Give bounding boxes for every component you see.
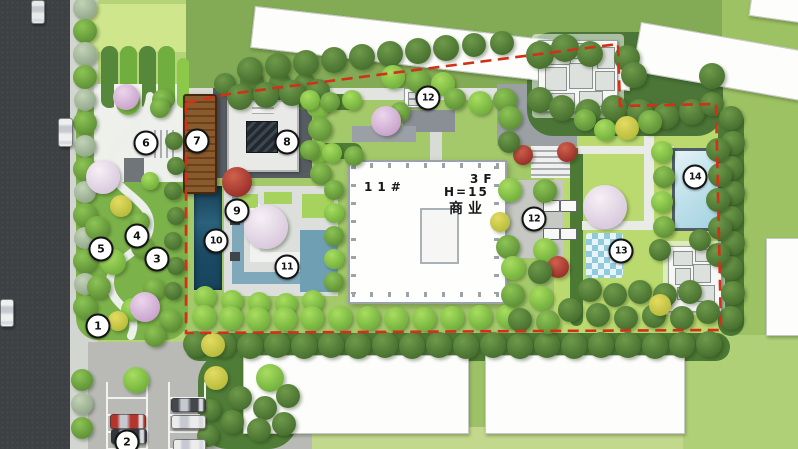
marker-12: 12 — [522, 207, 547, 232]
marker-4: 4 — [125, 224, 150, 249]
marker-2: 2 — [115, 430, 140, 449]
marker-5: 5 — [89, 237, 114, 262]
marker-8: 8 — [275, 130, 300, 155]
marker-14: 14 — [683, 165, 708, 190]
marker-13: 13 — [609, 239, 634, 264]
marker-3: 3 — [145, 247, 170, 272]
building-label: H=15 — [444, 185, 489, 199]
marker-11: 11 — [275, 255, 300, 280]
marker-9: 9 — [225, 199, 250, 224]
building-label: 11# — [364, 180, 406, 194]
building-label: 商业 — [449, 198, 487, 218]
site-boundary-dashed-line — [0, 0, 798, 449]
building-label: 3F — [470, 172, 497, 186]
site-plan-canvas: 12345678910111212131411#3FH=15商业 — [0, 0, 798, 449]
marker-6: 6 — [134, 131, 159, 156]
marker-12: 12 — [416, 86, 441, 111]
marker-7: 7 — [185, 129, 210, 154]
marker-1: 1 — [86, 314, 111, 339]
marker-10: 10 — [204, 229, 229, 254]
